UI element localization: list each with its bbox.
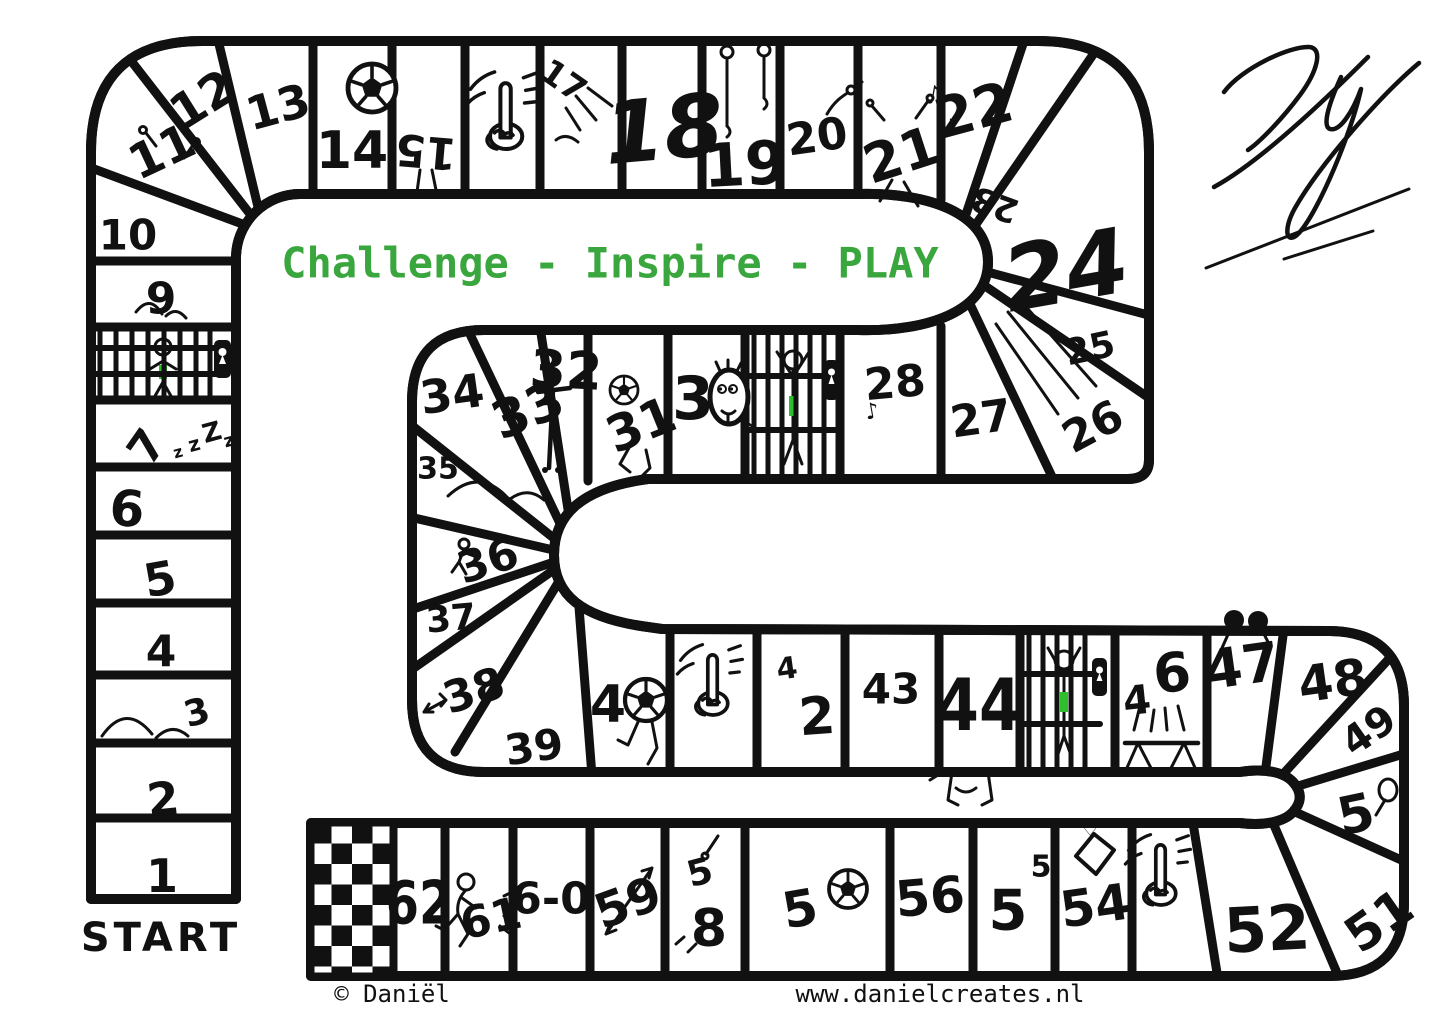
signature-dy: [1206, 47, 1419, 268]
cell-58-number-part2: 8: [691, 899, 727, 959]
cell-46-number-part1: 4: [1121, 677, 1153, 726]
start-label: START: [81, 915, 241, 961]
cell-55-number-part1: 5: [989, 879, 1028, 944]
soccer-ball-icon: [348, 64, 396, 112]
soccer-ball-icon: [625, 679, 667, 721]
gift-heart: ♡: [1082, 820, 1098, 841]
cell-52-number: 52: [1222, 890, 1312, 967]
cell-1-number: 1: [146, 849, 178, 903]
cell-56-number: 56: [893, 865, 967, 929]
cell-54-number: 54: [1057, 872, 1134, 939]
cell-27-number: 27: [947, 389, 1015, 448]
cell-30-number: 3: [672, 364, 714, 434]
website-text: www.danielcreates.nl: [796, 980, 1085, 1008]
cell-4-number: 4: [146, 627, 177, 678]
cell-24-number: 24: [995, 208, 1137, 333]
jail-cell-8: [94, 331, 231, 396]
cell-20-number: 20: [783, 107, 851, 166]
cell-10-number: 10: [99, 211, 157, 260]
cell-44-number: 44: [936, 663, 1021, 747]
cell-60-number: 6-0: [511, 874, 591, 925]
cell-48-number: 48: [1295, 647, 1372, 714]
copyright-text: © Daniël: [334, 980, 450, 1008]
cell-19-number: 19: [701, 128, 788, 202]
motto-text: Challenge - Inspire - PLAY: [281, 239, 939, 288]
cell-2-number: 2: [144, 770, 181, 827]
board-game-svg: 1 2 3 4 5 6 7 z z Z z 9 10 11 12 13 14 1…: [0, 0, 1445, 1022]
board-game-page: 1 2 3 4 5 6 7 z z Z z 9 10 11 12 13 14 1…: [0, 0, 1445, 1022]
cell-15-number: 15: [393, 123, 458, 179]
cell-35-number: 35: [417, 452, 459, 487]
cell-39-number: 39: [502, 719, 567, 776]
cell-37-number: 37: [424, 596, 477, 641]
cell-46-number-part2: 6: [1150, 640, 1194, 707]
cell-40-number: 4: [590, 675, 626, 735]
cell-47-number: 47: [1200, 630, 1283, 703]
cell-6-number: 6: [108, 479, 147, 539]
cell-43-number: 43: [862, 665, 920, 714]
cell-14-number: 14: [316, 121, 388, 181]
cell-62-number: 62: [386, 868, 453, 938]
cell-34-number: 34: [417, 363, 488, 425]
cell-55-number-part2: 5: [1031, 850, 1052, 885]
soccer-ball-icon: [829, 870, 867, 908]
cell-9-number: 9: [146, 274, 177, 325]
finish-checkered-flag: [311, 823, 393, 976]
cell-42-number-part2: 2: [797, 686, 837, 748]
